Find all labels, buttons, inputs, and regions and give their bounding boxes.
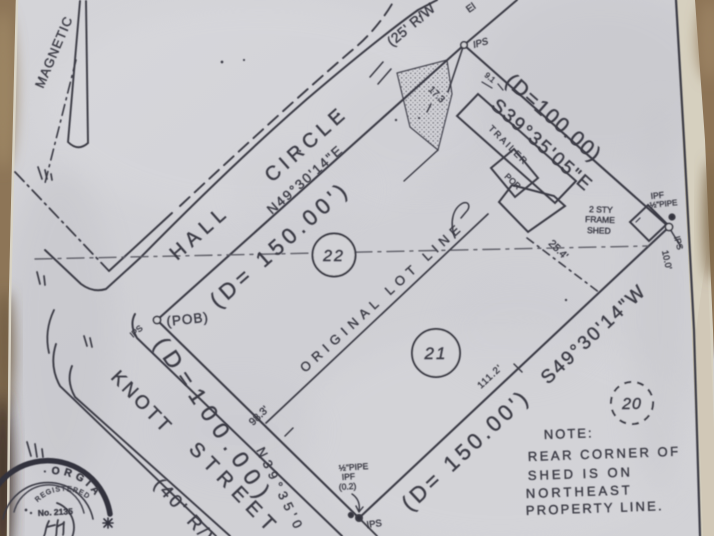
svg-text:NOTE:: NOTE: [544, 425, 594, 442]
svg-text:20: 20 [621, 396, 642, 413]
svg-text:2 STY: 2 STY [589, 204, 613, 215]
svg-text:22: 22 [322, 248, 345, 265]
svg-text:21: 21 [424, 344, 448, 363]
svg-text:SHED: SHED [587, 225, 611, 236]
svg-text:No. 2135: No. 2135 [38, 506, 74, 518]
svg-text:FRAME: FRAME [585, 214, 615, 225]
svg-text:IPS: IPS [366, 518, 383, 531]
svg-text:(0.2): (0.2) [338, 481, 356, 492]
